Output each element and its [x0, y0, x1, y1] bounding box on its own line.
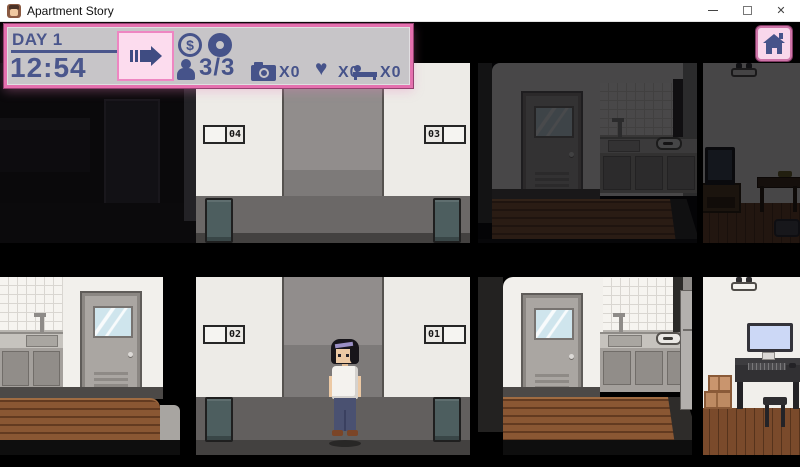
titlebar: Apartment Story ✕	[0, 0, 800, 22]
hud-panel: DAY 1 12:54 $ 3/3 x0 ♥ x0	[4, 24, 413, 88]
stool-leg	[765, 404, 769, 427]
faucet-spout	[613, 313, 625, 317]
home-icon	[763, 33, 785, 55]
step-edge	[160, 405, 180, 440]
minimize-button[interactable]	[696, 0, 730, 21]
faucet-spout	[34, 313, 46, 317]
camera-icon	[251, 65, 276, 81]
maximize-icon	[743, 6, 752, 15]
apartment-lower-left	[0, 277, 180, 455]
desk-leg	[737, 382, 743, 409]
tenant-icon-body	[177, 68, 195, 80]
room-03-door[interactable]	[433, 198, 461, 243]
cardboard-box	[708, 375, 732, 392]
wall-gap	[470, 63, 478, 243]
desk-leg	[793, 382, 799, 409]
wall-gap	[470, 277, 478, 455]
apartment-door[interactable]	[82, 293, 140, 398]
app-icon	[7, 4, 21, 18]
bed-icon-head	[354, 65, 361, 72]
wood-floor	[700, 408, 800, 455]
plate-04-number: 04	[225, 127, 243, 142]
app-window: Apartment Story ✕	[0, 0, 800, 467]
wall-gap	[692, 277, 703, 455]
rice-cooker	[656, 332, 682, 345]
cabinet-panel	[33, 351, 60, 386]
home-button[interactable]	[756, 26, 792, 61]
plate-02: 02	[203, 325, 245, 344]
hallway-lower: 02 01	[196, 277, 470, 455]
wall-gap	[697, 63, 703, 243]
dark-apartment-door[interactable]	[104, 99, 160, 207]
character-shirt	[332, 366, 358, 399]
office-lower-right	[700, 277, 800, 455]
computer-desk	[735, 358, 800, 382]
hallway-floor-edge	[196, 233, 470, 243]
bed-icon	[353, 65, 377, 80]
tenant-icon	[177, 59, 195, 80]
cardboard-box	[704, 391, 732, 409]
arrow-head-icon	[151, 46, 162, 66]
game-scene[interactable]: 04 03	[0, 22, 800, 467]
door-window	[534, 308, 574, 340]
monitor-stand	[762, 352, 775, 360]
room-04-door[interactable]	[205, 198, 233, 243]
cabinet-panel	[635, 351, 663, 385]
wall-edge	[478, 277, 503, 432]
door-vents	[94, 372, 128, 387]
floor-lower: 02 01	[0, 277, 800, 455]
character-shoe	[332, 430, 343, 436]
living-room-upper-right	[700, 63, 800, 243]
clock-time: 12:54	[10, 52, 87, 84]
close-button[interactable]: ✕	[764, 0, 798, 21]
character-shadow	[329, 440, 361, 447]
bed-icon-leg	[354, 77, 357, 80]
apartment-lower-right	[478, 277, 700, 455]
plate-01: 01	[424, 325, 466, 344]
door-window	[93, 306, 133, 338]
hallway-upper: 04 03	[196, 63, 470, 243]
character-shoe	[347, 430, 358, 436]
faucet	[40, 315, 44, 333]
home-icon-roof	[763, 34, 785, 43]
room-02-door[interactable]	[205, 397, 233, 442]
character-hair	[350, 347, 359, 364]
computer-monitor	[747, 323, 793, 352]
plate-02-number: 02	[225, 327, 243, 342]
skip-time-button[interactable]	[117, 31, 174, 81]
player-character[interactable]	[327, 339, 363, 447]
home-icon-door	[772, 48, 777, 54]
apartment-upper-right	[478, 63, 700, 243]
plate-03-number: 03	[426, 127, 444, 142]
kitchen-tiles	[0, 277, 63, 332]
darkness-overlay	[478, 63, 700, 243]
plate-03: 03	[424, 125, 466, 144]
dark-apartment-floor	[0, 203, 196, 243]
character-eye	[338, 354, 341, 357]
door-knob	[569, 354, 574, 359]
dollar-symbol: $	[186, 37, 194, 53]
corridor-lower-wall	[284, 170, 382, 196]
dark-kitchen-cabinets	[0, 130, 90, 172]
floor-shadow	[0, 440, 180, 455]
corridor-back-wall	[284, 277, 382, 345]
cabinet-panel	[2, 351, 29, 386]
mouse	[789, 363, 796, 368]
character-pants	[334, 398, 356, 431]
tenant-count: 3/3	[199, 54, 235, 82]
kitchen-sink	[608, 335, 642, 347]
character-eye	[346, 354, 349, 357]
arrow-shaft-icon	[143, 50, 151, 62]
plate-01-number: 01	[426, 327, 444, 342]
wood-floor	[503, 397, 675, 441]
kitchen-cabinets	[0, 348, 63, 390]
floor-upper: 04 03	[0, 63, 800, 243]
camera-stat: x0	[279, 64, 301, 82]
minimize-icon	[708, 10, 718, 11]
cabinet-panel	[603, 351, 631, 385]
room-01-door[interactable]	[433, 397, 461, 442]
maximize-button[interactable]	[730, 0, 764, 21]
door-knob	[128, 352, 133, 357]
kitchen-tiles	[603, 278, 673, 332]
window-title: Apartment Story	[27, 4, 696, 18]
ceiling-lamp	[731, 282, 757, 291]
speed-bars-icon	[130, 50, 143, 62]
faucet	[619, 315, 623, 332]
floor-shadow	[503, 440, 700, 455]
apartment-door[interactable]	[523, 295, 581, 398]
kitchen-sink	[26, 335, 58, 347]
apartment-upper-left-dark	[0, 63, 196, 243]
window-controls: ✕	[696, 0, 798, 21]
stool-leg	[781, 404, 785, 427]
plate-04: 04	[203, 125, 245, 144]
darkness-overlay	[700, 63, 800, 243]
dark-kitchen-counter	[0, 118, 90, 130]
skip-time-icon	[130, 46, 162, 66]
close-icon: ✕	[776, 4, 785, 17]
heart-icon: ♥	[315, 57, 327, 81]
bed-icon-leg	[373, 77, 376, 80]
stool	[763, 397, 787, 405]
bed-stat: x0	[380, 64, 402, 82]
wood-floor	[0, 398, 160, 440]
day-label: DAY 1	[12, 30, 63, 50]
keyboard	[748, 363, 786, 370]
